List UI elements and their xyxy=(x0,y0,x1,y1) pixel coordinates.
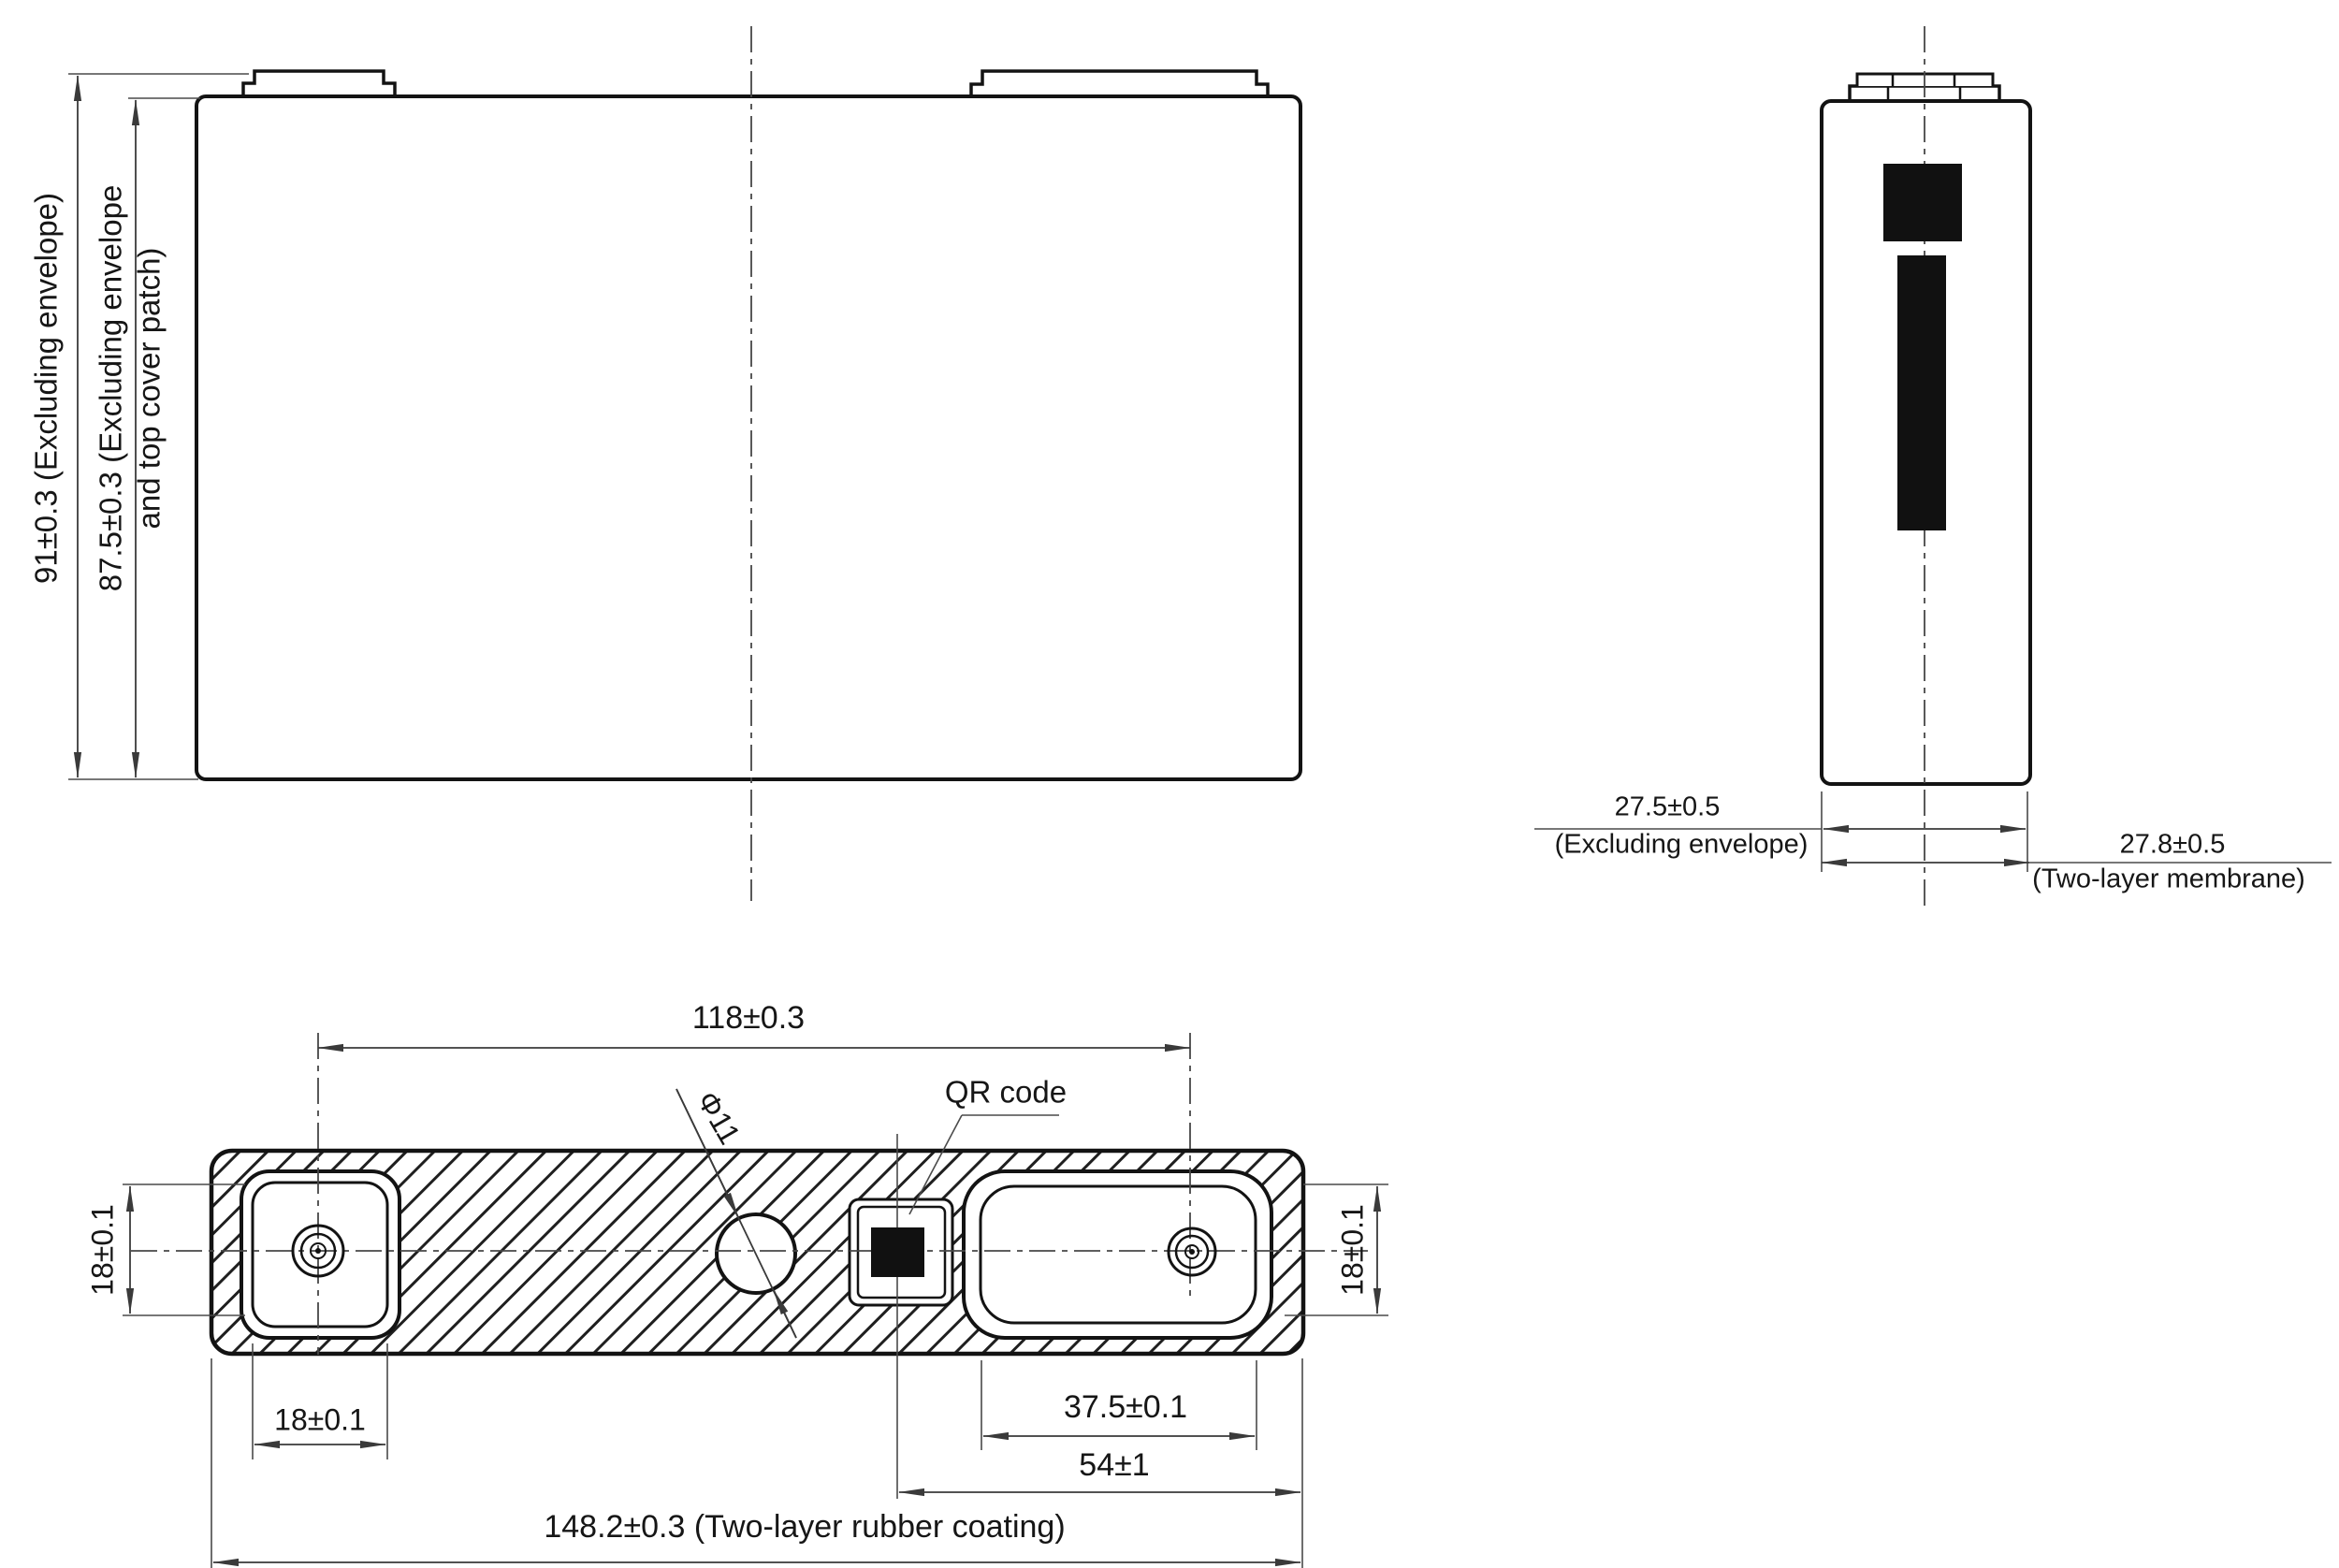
side-view: 27.5±0.5 (Excluding envelope) 27.8±0.5 (… xyxy=(1534,26,2332,912)
battery-technical-drawing: 91±0.3 (Excluding envelope) 87.5±0.3 (Ex… xyxy=(0,0,2339,1568)
dim-label-left-terminal-width: 18±0.1 xyxy=(274,1402,366,1436)
top-view-right-terminal-outer xyxy=(964,1171,1271,1338)
top-view-qr-square xyxy=(871,1227,924,1277)
dim-label-terminal-pitch: 118±0.3 xyxy=(692,1000,805,1036)
qr-code-label: QR code xyxy=(945,1075,1067,1110)
dim-label-height-inner-line1: 87.5±0.3 (Excluding envelope xyxy=(94,185,128,592)
stud-center-dot xyxy=(315,1248,321,1254)
left-terminal-stud xyxy=(293,1226,343,1276)
dim-label-height-outer: 91±0.3 (Excluding envelope) xyxy=(29,193,64,584)
dim-label-overall-length: 148.2±0.3 (Two-layer rubber coating) xyxy=(544,1509,1065,1545)
front-view-cell-body xyxy=(196,96,1300,779)
dim-label-left-terminal-height: 18±0.1 xyxy=(85,1204,119,1296)
dim-label-right-terminal-height: 18±0.1 xyxy=(1335,1204,1369,1296)
dim-label-height-inner-line2: and top cover patch) xyxy=(132,248,167,530)
right-terminal-stud xyxy=(1169,1228,1215,1275)
dim-label-qr-to-edge: 54±1 xyxy=(1079,1447,1149,1483)
front-view-left-terminal xyxy=(243,71,395,94)
top-view-left-terminal-outer xyxy=(241,1171,400,1338)
dim-label-membrane-note: (Two-layer membrane) xyxy=(2032,864,2305,894)
stud-center-dot xyxy=(1189,1249,1195,1255)
vent-diameter-label: Φ11 xyxy=(690,1085,748,1150)
dim-label-membrane-value: 27.8±0.5 xyxy=(2120,830,2226,860)
dim-label-thickness-value: 27.5±0.5 xyxy=(1615,792,1721,822)
front-view-right-terminal xyxy=(971,71,1268,94)
dim-label-thickness-note: (Excluding envelope) xyxy=(1555,830,1809,860)
side-view-label-bar xyxy=(1897,255,1946,530)
drawing-canvas: 91±0.3 (Excluding envelope) 87.5±0.3 (Ex… xyxy=(0,0,2339,1568)
dim-label-right-terminal-width: 37.5±0.1 xyxy=(1064,1389,1187,1425)
front-view: 91±0.3 (Excluding envelope) 87.5±0.3 (Ex… xyxy=(29,26,1300,901)
top-view: 118±0.3 Φ11 QR code 18±0.1 18±0.1 18±0.1… xyxy=(85,1000,1388,1568)
side-view-label-square xyxy=(1883,164,1962,241)
